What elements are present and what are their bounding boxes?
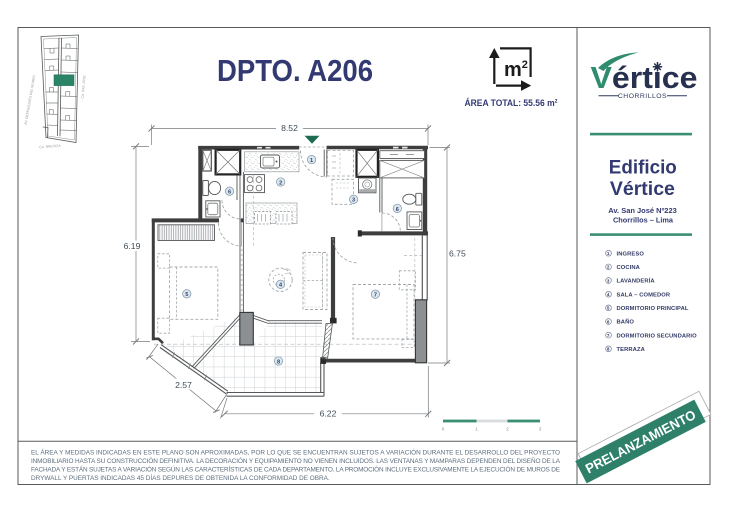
svg-text:5: 5 [185, 292, 188, 298]
svg-text:8: 8 [277, 359, 280, 365]
svg-text:3: 3 [352, 198, 355, 204]
svg-text:6: 6 [396, 207, 399, 213]
svg-text:ÁREA TOTAL: 55.56 m²: ÁREA TOTAL: 55.56 m² [465, 98, 558, 108]
svg-text:SALA – COMEDOR: SALA – COMEDOR [617, 292, 671, 298]
svg-text:EL ÁREA Y MEDIDAS INDICADAS EN: EL ÁREA Y MEDIDAS INDICADAS EN ESTE PLAN… [31, 448, 560, 457]
svg-text:6.19: 6.19 [124, 241, 141, 251]
svg-text:CA. SAN JOSE: CA. SAN JOSE [80, 74, 86, 98]
svg-text:2.57: 2.57 [175, 380, 192, 390]
svg-text:3: 3 [539, 427, 542, 432]
svg-text:m2: m2 [504, 59, 528, 81]
svg-text:Vértice: Vértice [610, 178, 675, 200]
svg-text:AV. DEFENSORES DEL MORRO: AV. DEFENSORES DEL MORRO [24, 74, 37, 125]
svg-text:6.22: 6.22 [320, 409, 337, 419]
svg-text:LAVANDERÍA: LAVANDERÍA [617, 277, 656, 285]
svg-text:Av. San José Nº223: Av. San José Nº223 [608, 206, 677, 215]
svg-text:INMOBILIARIO HASTA SU CONSTRUC: INMOBILIARIO HASTA SU CONSTRUCCIÓN DEFIN… [31, 456, 561, 465]
svg-text:CHORRILLOS: CHORRILLOS [618, 93, 667, 100]
svg-text:CA. BRESCIA: CA. BRESCIA [39, 144, 61, 150]
svg-text:DORMITORIO PRINCIPAL: DORMITORIO PRINCIPAL [617, 306, 689, 312]
svg-text:6: 6 [228, 190, 231, 196]
svg-text:7: 7 [374, 293, 377, 299]
svg-text:TERRAZA: TERRAZA [617, 347, 646, 353]
svg-text:Chorrillos – Lima: Chorrillos – Lima [613, 215, 674, 224]
svg-text:BAÑO: BAÑO [617, 319, 635, 326]
svg-text:DPTO. A206: DPTO. A206 [217, 54, 373, 88]
svg-text:2: 2 [506, 427, 509, 432]
svg-text:FACHADA Y ESTÁN SUJETAS A VARI: FACHADA Y ESTÁN SUJETAS A VARIACIÓN SEGÚ… [31, 464, 560, 473]
svg-text:1: 1 [310, 158, 313, 164]
svg-text:Edificio: Edificio [609, 157, 677, 179]
svg-text:8.52: 8.52 [281, 123, 298, 133]
svg-text:DRYWALL Y PUERTAS INDICADAS 45: DRYWALL Y PUERTAS INDICADAS 45 DÍAS DEPU… [31, 473, 330, 482]
svg-text:6.75: 6.75 [449, 249, 466, 259]
svg-text:INGRESO: INGRESO [617, 251, 645, 257]
svg-text:2: 2 [279, 180, 282, 186]
svg-text:1: 1 [475, 427, 478, 432]
svg-text:0: 0 [442, 427, 445, 432]
svg-text:COCINA: COCINA [617, 265, 641, 271]
svg-text:DORMITORIO SECUNDARIO: DORMITORIO SECUNDARIO [617, 333, 698, 339]
